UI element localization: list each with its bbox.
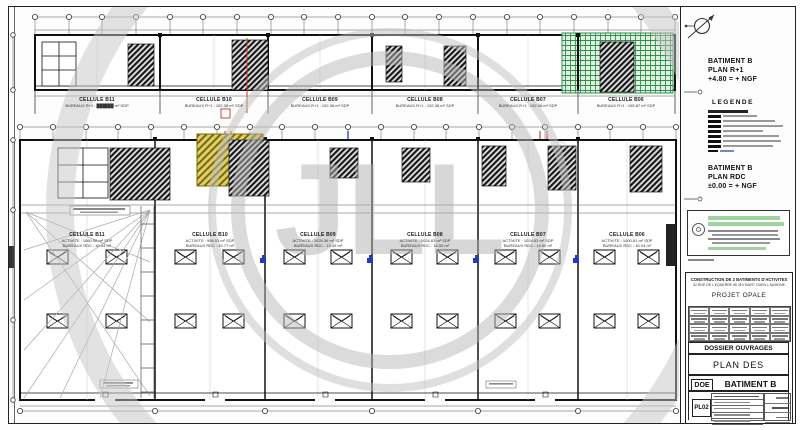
text-smudge (772, 407, 788, 409)
text-smudge (723, 120, 775, 122)
r1-cell-label-b09: CELLULE B09BUREAUX R+1 : 192.38 m² SDP (265, 98, 375, 109)
titleblock-table-cell (770, 307, 790, 316)
rdc-cell-label-b10: CELLULE B10ACTIVITE : 996.01 m² SDPBUREA… (155, 233, 265, 249)
legend-swatch (708, 135, 721, 138)
r1-cell-label-b08: CELLULE B08BUREAUX R+1 : 192.38 m² SDP (370, 98, 480, 109)
text-smudge (723, 125, 783, 127)
text-smudge (714, 414, 750, 416)
datum-marks (684, 90, 702, 201)
stair-core (600, 42, 634, 92)
legend-swatch (708, 140, 721, 143)
highlighted-note (708, 222, 784, 226)
text-smudge (688, 259, 714, 261)
text-smudge (723, 115, 757, 117)
legend-row (708, 140, 788, 143)
rdc-cell-label-b09: CELLULE B09ACTIVITE : 1025.36 m² SDPBURE… (263, 233, 373, 249)
registered-mark: ® (553, 139, 568, 161)
r1-cell-label-b10: CELLULE B10BUREAUX R+1 : 192.38 m² SDP (159, 98, 269, 109)
sheet-number-box: PL02 (692, 399, 711, 417)
title-block: CONSTRUCTION DE 2 BATIMENTS D'ACTIVITES … (685, 272, 793, 424)
r1-cell-label-b11: CELLULE B11BUREAUX R+1 : ██████ m² SDP (42, 98, 152, 109)
text-smudge (714, 396, 759, 398)
titleblock-table-cell (750, 307, 770, 316)
legend-row (708, 130, 788, 133)
titleblock-table-cell (689, 316, 709, 325)
titleblock-table-cell (770, 316, 790, 325)
text-smudge (714, 420, 750, 422)
r1-cell-label-b07: CELLULE B07BUREAUX R+1 : 192.38 m² SDP (473, 98, 583, 109)
drawing-sheet: JLL ® CELLULE B11BUREAUX R+1 : ██████ m²… (0, 0, 800, 430)
titleblock-table-cell (750, 324, 770, 333)
doc-type-box: DOE (691, 379, 713, 392)
stair-core (128, 44, 154, 86)
project-description: CONSTRUCTION DE 2 BATIMENTS D'ACTIVITES (686, 277, 792, 282)
titleblock-table-cell (729, 333, 749, 342)
text-smudge (708, 230, 778, 232)
titleblock-table-cell (729, 324, 749, 333)
scale-row (765, 404, 790, 414)
notes-box (687, 210, 790, 256)
legend-swatch (708, 150, 718, 153)
text-smudge (723, 145, 773, 147)
highlighted-note (708, 216, 780, 220)
scale-row (765, 394, 790, 404)
dossier-row: DOSSIER OUVRAGES EXECUTES (688, 342, 789, 354)
scale-row (765, 413, 790, 423)
legend-row (708, 150, 788, 153)
text-smudge (714, 402, 750, 404)
highlighted-note (708, 247, 766, 250)
legend-swatch (708, 125, 721, 128)
titleblock-table-cell (709, 324, 729, 333)
project-address: 32 RUE DE L'EQUERRE 95 310 SAINT OUEN L'… (686, 283, 792, 287)
plan-rdc-title: BATIMENT B PLAN RDC ±0.00 = + NGF (708, 164, 757, 191)
legend-swatch (708, 120, 721, 123)
legend-title: LEGENDE (712, 99, 754, 106)
text-smudge (723, 135, 779, 137)
north-arrow-icon (685, 15, 714, 38)
text-smudge (776, 417, 788, 419)
stair-core (110, 148, 170, 200)
project-name: PROJET OPALE (686, 292, 792, 299)
titleblock-table-cell (709, 333, 729, 342)
legend-row (708, 125, 788, 128)
legend-row (708, 135, 788, 138)
building-name: BATIMENT B (713, 376, 788, 390)
sheet-title: PLAN DES NIVEAUX (688, 354, 789, 375)
titleblock-table (688, 306, 791, 342)
legend (708, 110, 788, 155)
grid-bubbles-rdc (17, 124, 678, 129)
titleblock-table-cell (729, 316, 749, 325)
stair-core (630, 146, 662, 192)
titleblock-table-cell (729, 307, 749, 316)
revision-table (711, 393, 764, 421)
watermark-logo-text: JLL (274, 136, 505, 282)
rdc-cell-label-b11: CELLULE B11ACTIVITE : 1060.50 m² SDPBURE… (32, 233, 142, 249)
rdc-cell-label-b07: CELLULE B07ACTIVITE : 1024.63 m² SDPBURE… (473, 233, 583, 249)
legend-swatch (708, 115, 721, 118)
titleblock-table-cell (709, 316, 729, 325)
titleblock-table-cell (689, 333, 709, 342)
titleblock-table-cell (750, 316, 770, 325)
titleblock-table-cell (709, 307, 729, 316)
titleblock-table-cell (750, 333, 770, 342)
legend-row (708, 145, 788, 148)
rdc-cell-label-b06: CELLULE B06ACTIVITE : 1000.61 m² SDPBURE… (572, 233, 682, 249)
text-smudge (712, 242, 770, 244)
revision-row (712, 419, 763, 425)
titleblock-table-cell (770, 324, 790, 333)
titleblock-table-cell (689, 324, 709, 333)
legend-subheading-smudge (708, 110, 748, 113)
text-smudge (776, 397, 788, 399)
stamp-icon (692, 223, 705, 236)
legend-swatch (708, 145, 721, 148)
text-smudge (720, 150, 734, 152)
text-smudge (708, 238, 780, 240)
r1-cell-label-b06: CELLULE B06BUREAUX R+1 : 195.87 m² SDP (571, 98, 681, 109)
revision-strip: PL02 (688, 391, 789, 420)
titleblock-table-cell (770, 333, 790, 342)
plan-r1-title: BATIMENT B PLAN R+1 +4.80 = + NGF (708, 57, 757, 84)
doe-row: DOE BATIMENT B (688, 375, 789, 391)
titleblock-table-cell (689, 307, 709, 316)
text-smudge (723, 130, 763, 132)
legend-row (708, 115, 788, 118)
text-smudge (714, 408, 750, 410)
plan-linework: JLL ® (0, 0, 800, 430)
scale-box (764, 393, 791, 421)
legend-swatch (708, 130, 721, 133)
text-smudge (723, 140, 781, 142)
text-smudge (712, 234, 778, 236)
rdc-cell-label-b08: CELLULE B08ACTIVITE : 1024.63 m² SDPBURE… (370, 233, 480, 249)
legend-row (708, 120, 788, 123)
